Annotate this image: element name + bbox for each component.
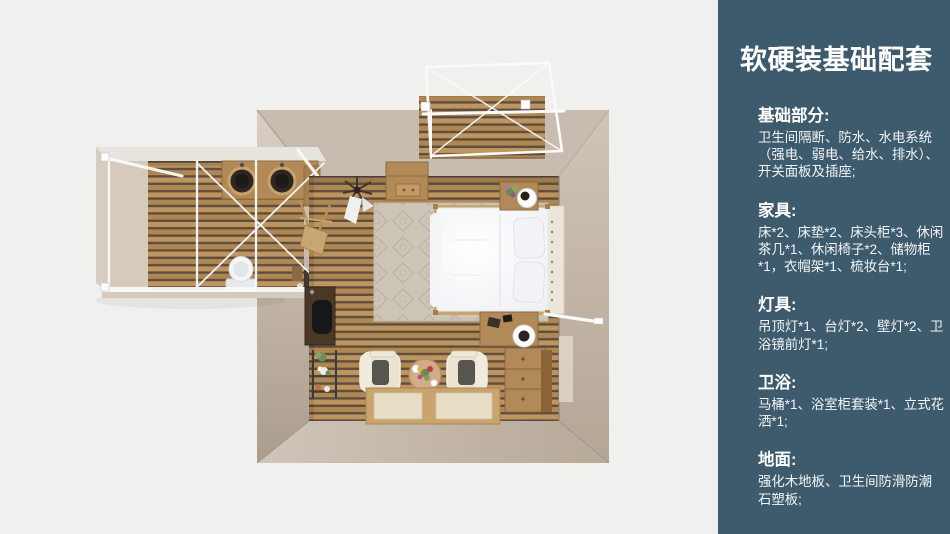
- bed-throw: [430, 213, 441, 307]
- floorplan-render: [0, 0, 718, 534]
- section-body: 强化木地板、卫生间防滑防潮石塑板;: [758, 473, 944, 508]
- section-body: 卫生间隔断、防水、水电系统（强电、弱电、给水、排水）、开关面板及插座;: [758, 129, 944, 181]
- bedroom-interior: [300, 162, 603, 424]
- section-heading: 家具:: [758, 201, 942, 222]
- table-lamp: [513, 325, 535, 347]
- section-bathroom: 卫浴: 马桶*1、浴室柜套装*1、立式花洒*1;: [758, 373, 942, 431]
- section-flooring: 地面: 强化木地板、卫生间防滑防潮石塑板;: [758, 450, 942, 508]
- section-body: 马桶*1、浴室柜套装*1、立式花洒*1;: [758, 396, 944, 431]
- wing-left-wall: [96, 147, 108, 291]
- coffee-table: [409, 359, 441, 391]
- section-basics: 基础部分: 卫生间隔断、防水、水电系统（强电、弱电、给水、排水）、开关面板及插座…: [758, 106, 942, 181]
- section-body: 吊顶灯*1、台灯*2、壁灯*2、卫浴镜前灯*1;: [758, 318, 944, 353]
- slide: 软硬装基础配套 基础部分: 卫生间隔断、防水、水电系统（强电、弱电、给水、排水）…: [0, 0, 950, 534]
- section-heading: 地面:: [758, 450, 942, 471]
- panel-title: 软硬装基础配套: [740, 44, 936, 78]
- wall-panel: [559, 336, 573, 402]
- floor-mats: [366, 388, 500, 424]
- section-heading: 基础部分:: [758, 106, 942, 127]
- pillow: [513, 261, 545, 303]
- wing-inner-wall: [108, 161, 148, 291]
- section-lighting: 灯具: 吊顶灯*1、台灯*2、壁灯*2、卫浴镜前灯*1;: [758, 295, 942, 353]
- bathroom-wing: [95, 147, 330, 309]
- section-furniture: 家具: 床*2、床垫*2、床头柜*3、休闲茶几*1、休闲椅子*2、储物柜*1，衣…: [758, 201, 942, 276]
- section-heading: 卫浴:: [758, 373, 942, 394]
- double-sink-vanity: [222, 161, 320, 206]
- desk-chair: [312, 300, 332, 334]
- bed: [430, 204, 564, 315]
- storage-cabinet: [386, 162, 428, 200]
- section-heading: 灯具:: [758, 295, 942, 316]
- dresser: [505, 348, 552, 412]
- desk: [305, 287, 335, 345]
- nightstand-top: [500, 182, 538, 210]
- pillow: [513, 217, 545, 259]
- nightstand-bottom: [480, 312, 538, 347]
- info-panel: 软硬装基础配套 基础部分: 卫生间隔断、防水、水电系统（强电、弱电、给水、排水）…: [718, 0, 950, 534]
- section-body: 床*2、床垫*2、床头柜*3、休闲茶几*1、休闲椅子*2、储物柜*1，衣帽架*1…: [758, 224, 944, 276]
- wing-bottom-wall: [102, 292, 330, 298]
- table-lamp: [518, 189, 537, 208]
- wing-roof: [96, 147, 326, 161]
